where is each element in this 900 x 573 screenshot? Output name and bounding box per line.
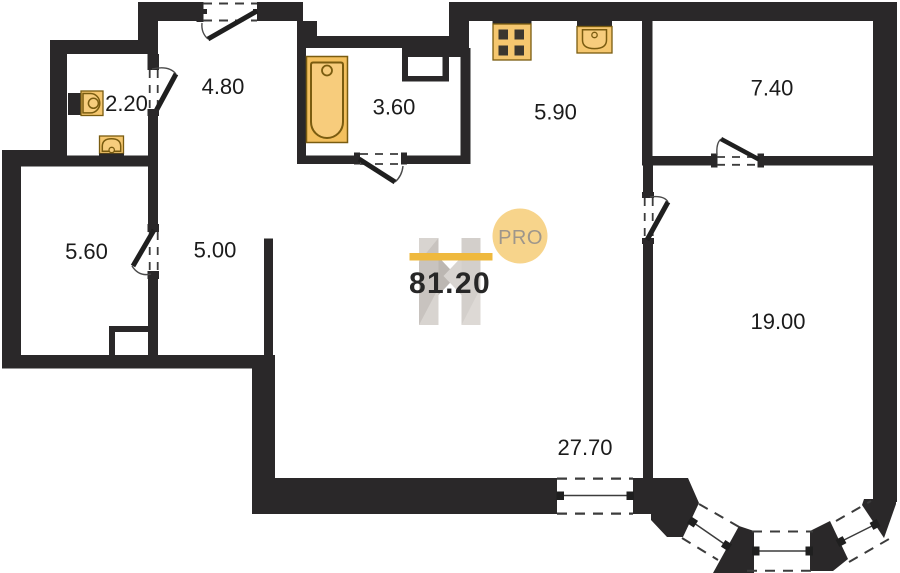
svg-text:2.20: 2.20 [105,91,148,116]
svg-text:81.20: 81.20 [409,267,491,300]
svg-text:PRO: PRO [498,227,543,249]
svg-text:7.40: 7.40 [751,76,794,101]
svg-text:5.60: 5.60 [65,239,108,264]
svg-text:19.00: 19.00 [750,309,805,334]
svg-text:3.60: 3.60 [373,95,416,120]
svg-text:4.80: 4.80 [202,74,245,99]
svg-text:27.70: 27.70 [557,435,612,460]
svg-text:5.00: 5.00 [194,238,237,263]
svg-text:5.90: 5.90 [534,100,577,125]
